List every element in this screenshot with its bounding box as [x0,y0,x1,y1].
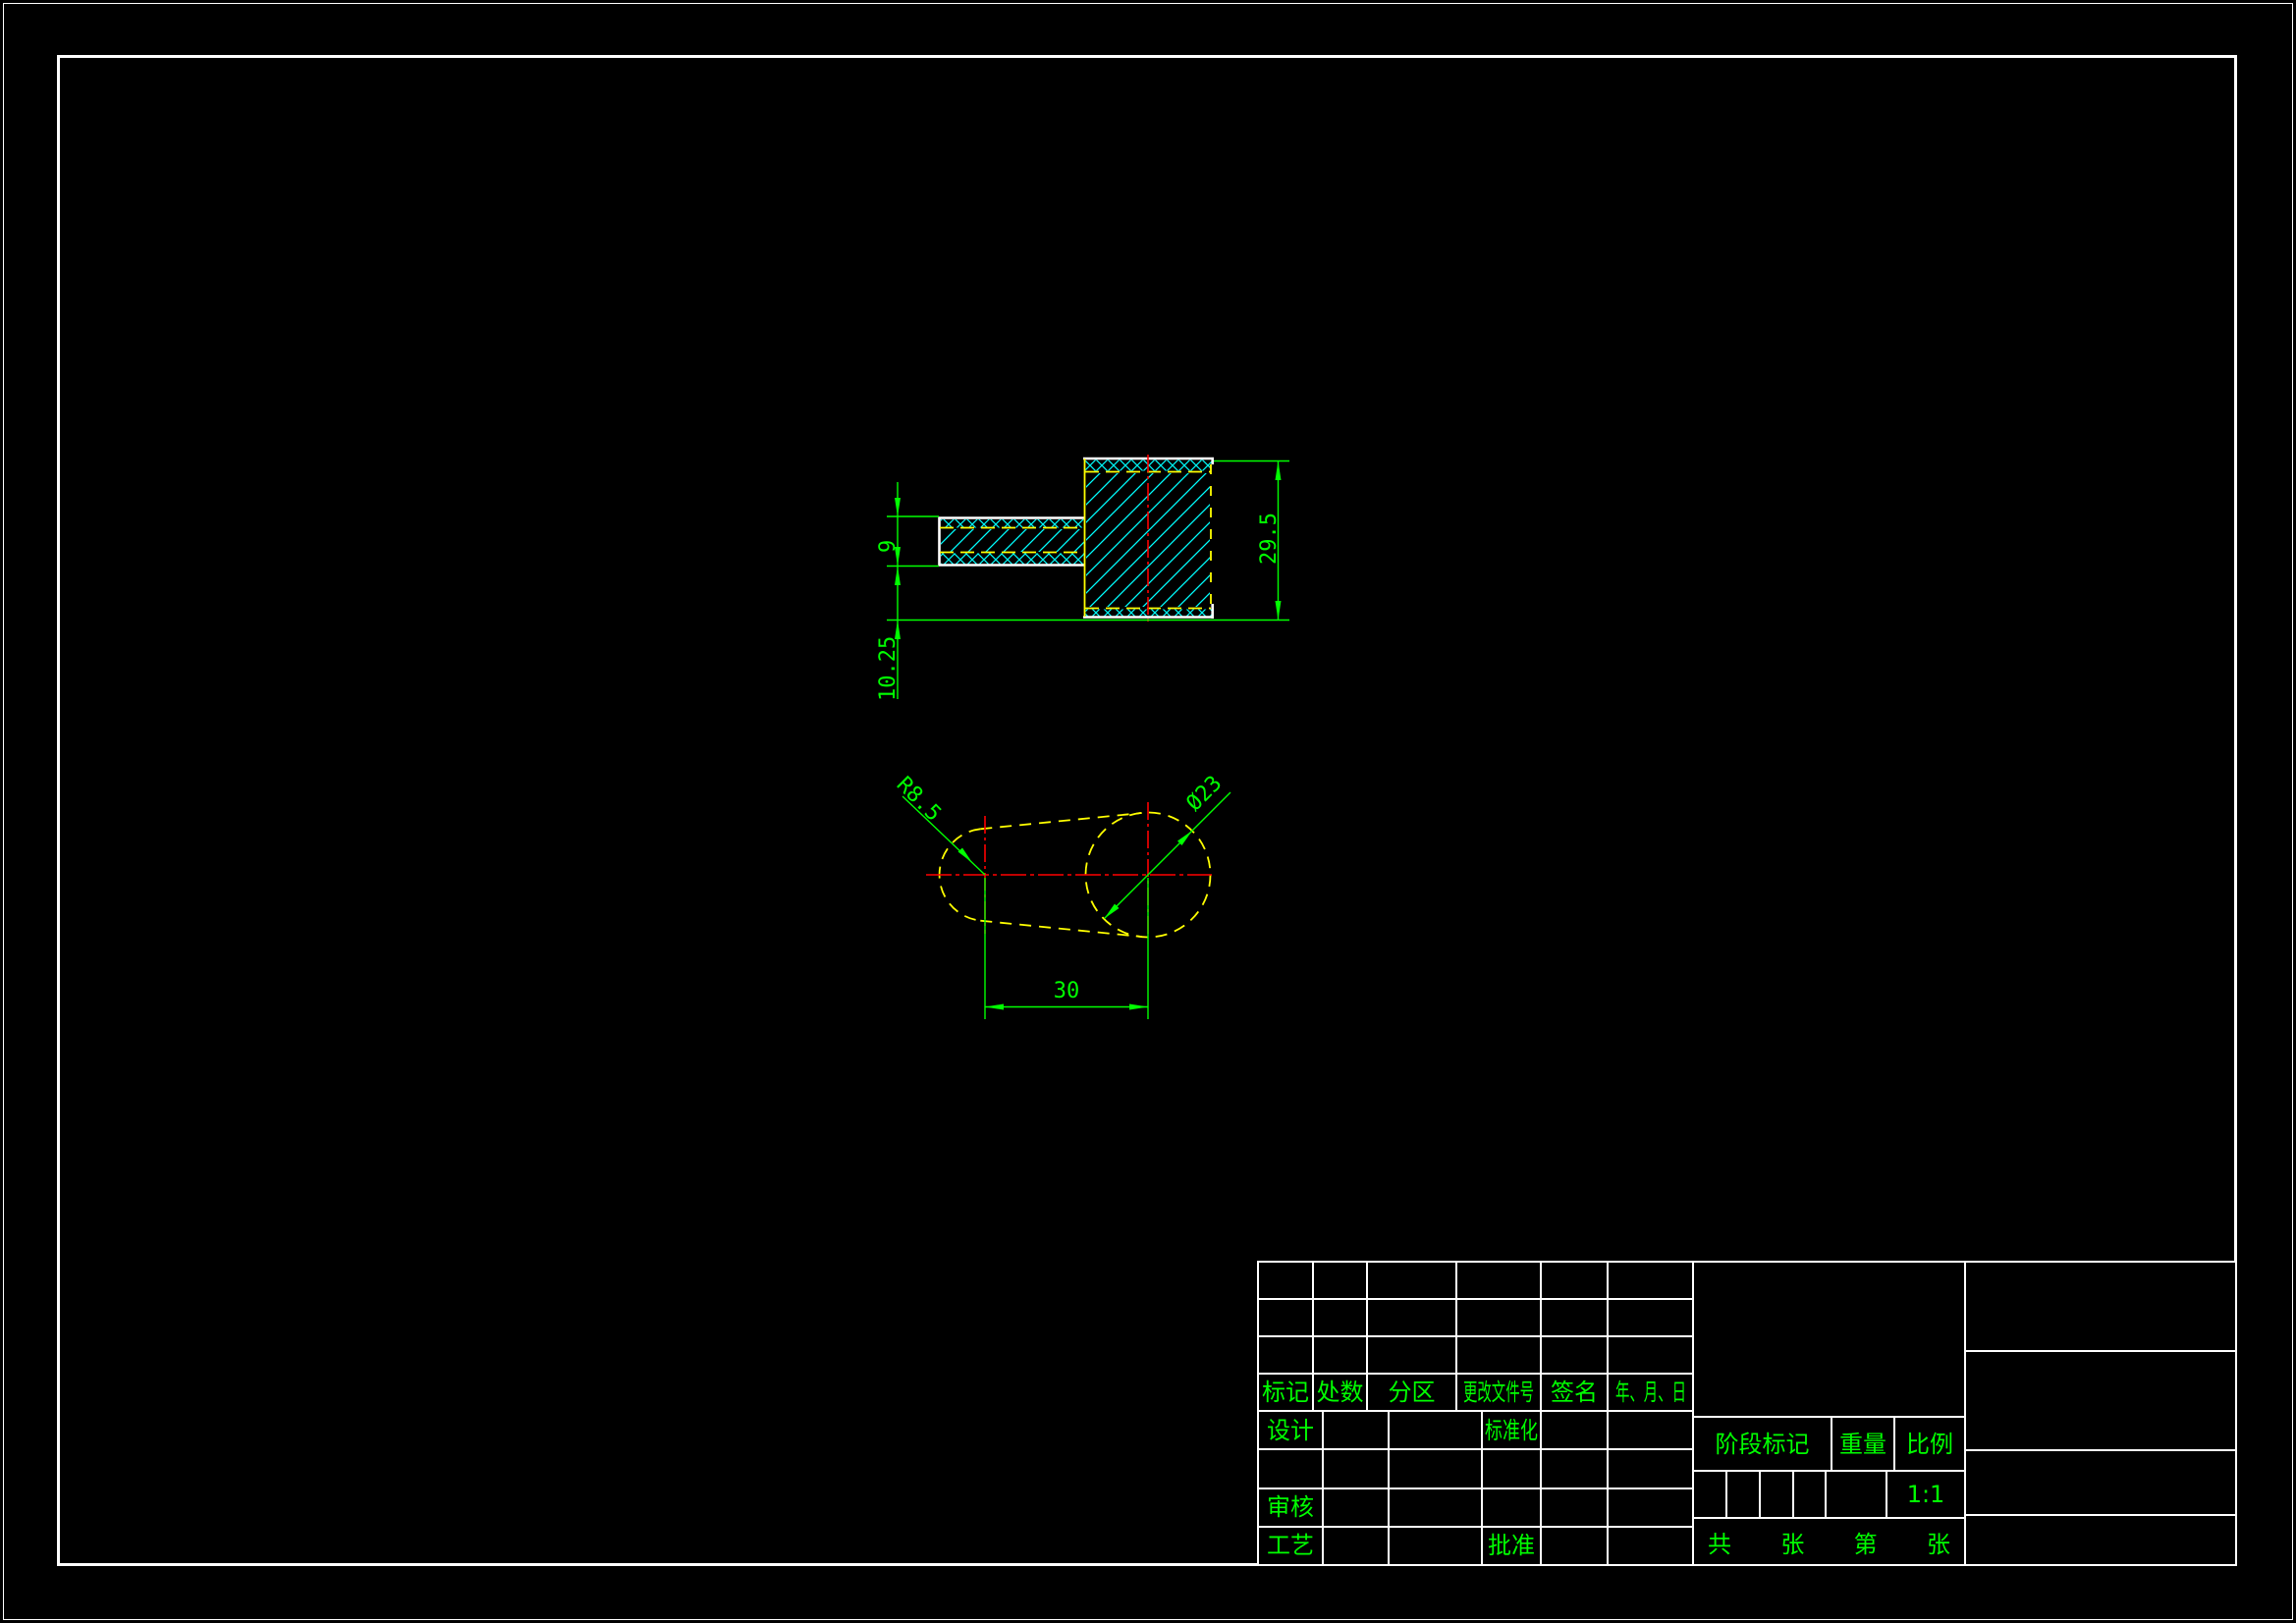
sig-cell-blank [1609,1450,1692,1487]
rev-cell-blank [1314,1300,1366,1335]
rev-cell-blank [1457,1263,1540,1298]
sig-cell-blank [1542,1450,1607,1487]
title-block: 标记 处数 分区 更改文件号 签名 年、月、日 设计 标准化 审核 [1257,1261,2237,1566]
dim-hole-diameter[interactable]: Ø23 [1182,771,1228,816]
right-cell-blank [1966,1516,2235,1564]
right-cell-blank [1966,1352,2235,1449]
sig-cell-blank [1609,1489,1692,1526]
dim-overall-height[interactable]: 29.5 [1257,513,1282,565]
rev-cell-blank [1259,1300,1312,1335]
label-process: 工艺 [1259,1528,1322,1564]
label-audit: 审核 [1259,1489,1322,1526]
rev-header-zone: 分区 [1368,1375,1455,1410]
rev-cell-blank [1609,1337,1692,1373]
stage-cell-blank [1794,1472,1825,1517]
part-name-zone [1694,1263,1964,1416]
sig-cell-blank [1324,1450,1388,1487]
rev-cell-blank [1542,1300,1607,1335]
sig-cell-blank [1390,1412,1481,1448]
sig-cell-blank [1542,1489,1607,1526]
label-scale: 比例 [1895,1418,1964,1470]
rev-header-signature: 签名 [1542,1375,1607,1410]
dim-bottom-offset[interactable]: 10.25 [876,636,901,701]
sig-cell-blank [1324,1489,1388,1526]
rev-cell-blank [1609,1300,1692,1335]
sig-cell-blank [1483,1489,1540,1526]
sig-cell-blank [1390,1450,1481,1487]
stage-cell-blank [1761,1472,1792,1517]
rev-header-mark: 标记 [1259,1375,1312,1410]
rev-cell-blank [1368,1263,1455,1298]
sheet-total-label: 共 [1708,1525,1731,1559]
sig-cell-blank [1609,1412,1692,1448]
sig-cell-blank [1390,1528,1481,1564]
weight-value-blank [1827,1472,1886,1517]
rev-header-date: 年、月、日 [1609,1375,1692,1410]
arm-crosshatch-bottom [941,554,1084,565]
label-weight: 重量 [1832,1418,1893,1470]
stage-cell-blank [1727,1472,1759,1517]
cad-canvas[interactable]: 9 10.25 29.5 [0,0,2296,1623]
sig-cell-blank [1542,1412,1607,1448]
rev-cell-blank [1259,1337,1312,1373]
rev-cell-blank [1457,1337,1540,1373]
rev-cell-blank [1542,1337,1607,1373]
stage-cell-blank [1694,1472,1725,1517]
dim-left-radius[interactable]: R8.5 [892,773,946,827]
rev-cell-blank [1457,1300,1540,1335]
rev-cell-blank [1609,1263,1692,1298]
revision-table: 标记 处数 分区 更改文件号 签名 年、月、日 [1257,1261,1694,1412]
arm-hatch [941,529,1084,552]
sig-cell-blank [1483,1450,1540,1487]
label-design: 设计 [1259,1412,1322,1448]
dim-center-distance[interactable]: 30 [1054,979,1080,1003]
right-cell-blank [1966,1263,2235,1350]
label-approve: 批准 [1483,1528,1540,1564]
arm-crosshatch-top [941,519,1084,528]
dim-arm-thickness[interactable]: 9 [876,540,901,553]
sheet-no-label: 第 [1854,1525,1878,1559]
label-standardize: 标准化 [1483,1412,1540,1448]
section-view[interactable]: 9 10.25 29.5 [876,455,1289,701]
right-cell-blank [1966,1451,2235,1514]
label-stage-mark: 阶段标记 [1694,1418,1831,1470]
plan-view[interactable]: 30 R8.5 Ø23 [892,771,1230,1019]
sig-cell-blank [1324,1412,1388,1448]
scale-value: 1:1 [1887,1472,1964,1517]
rev-header-docno: 更改文件号 [1457,1375,1540,1410]
drawing-views[interactable]: 9 10.25 29.5 [825,432,1336,1080]
rev-header-count: 处数 [1314,1375,1366,1410]
rev-cell-blank [1314,1337,1366,1373]
sheet-zhang1-label: 张 [1780,1525,1804,1559]
rev-cell-blank [1542,1263,1607,1298]
sig-cell-blank [1259,1450,1322,1487]
rev-cell-blank [1314,1263,1366,1298]
rev-cell-blank [1368,1337,1455,1373]
sheet-zhang2-label: 张 [1927,1525,1950,1559]
sig-cell-blank [1390,1489,1481,1526]
sig-cell-blank [1542,1528,1607,1564]
sig-cell-blank [1324,1528,1388,1564]
title-block-right-column [1964,1261,2237,1566]
signature-table: 设计 标准化 审核 工艺 批准 [1257,1410,1694,1566]
rev-cell-blank [1259,1263,1312,1298]
rev-cell-blank [1368,1300,1455,1335]
plan-centerlines[interactable] [926,802,1212,936]
sheet-count-row: 共 张 第 张 [1694,1519,1964,1564]
title-block-middle: 阶段标记 重量 比例 1:1 共 张 第 张 [1692,1261,1966,1566]
sig-cell-blank [1609,1528,1692,1564]
